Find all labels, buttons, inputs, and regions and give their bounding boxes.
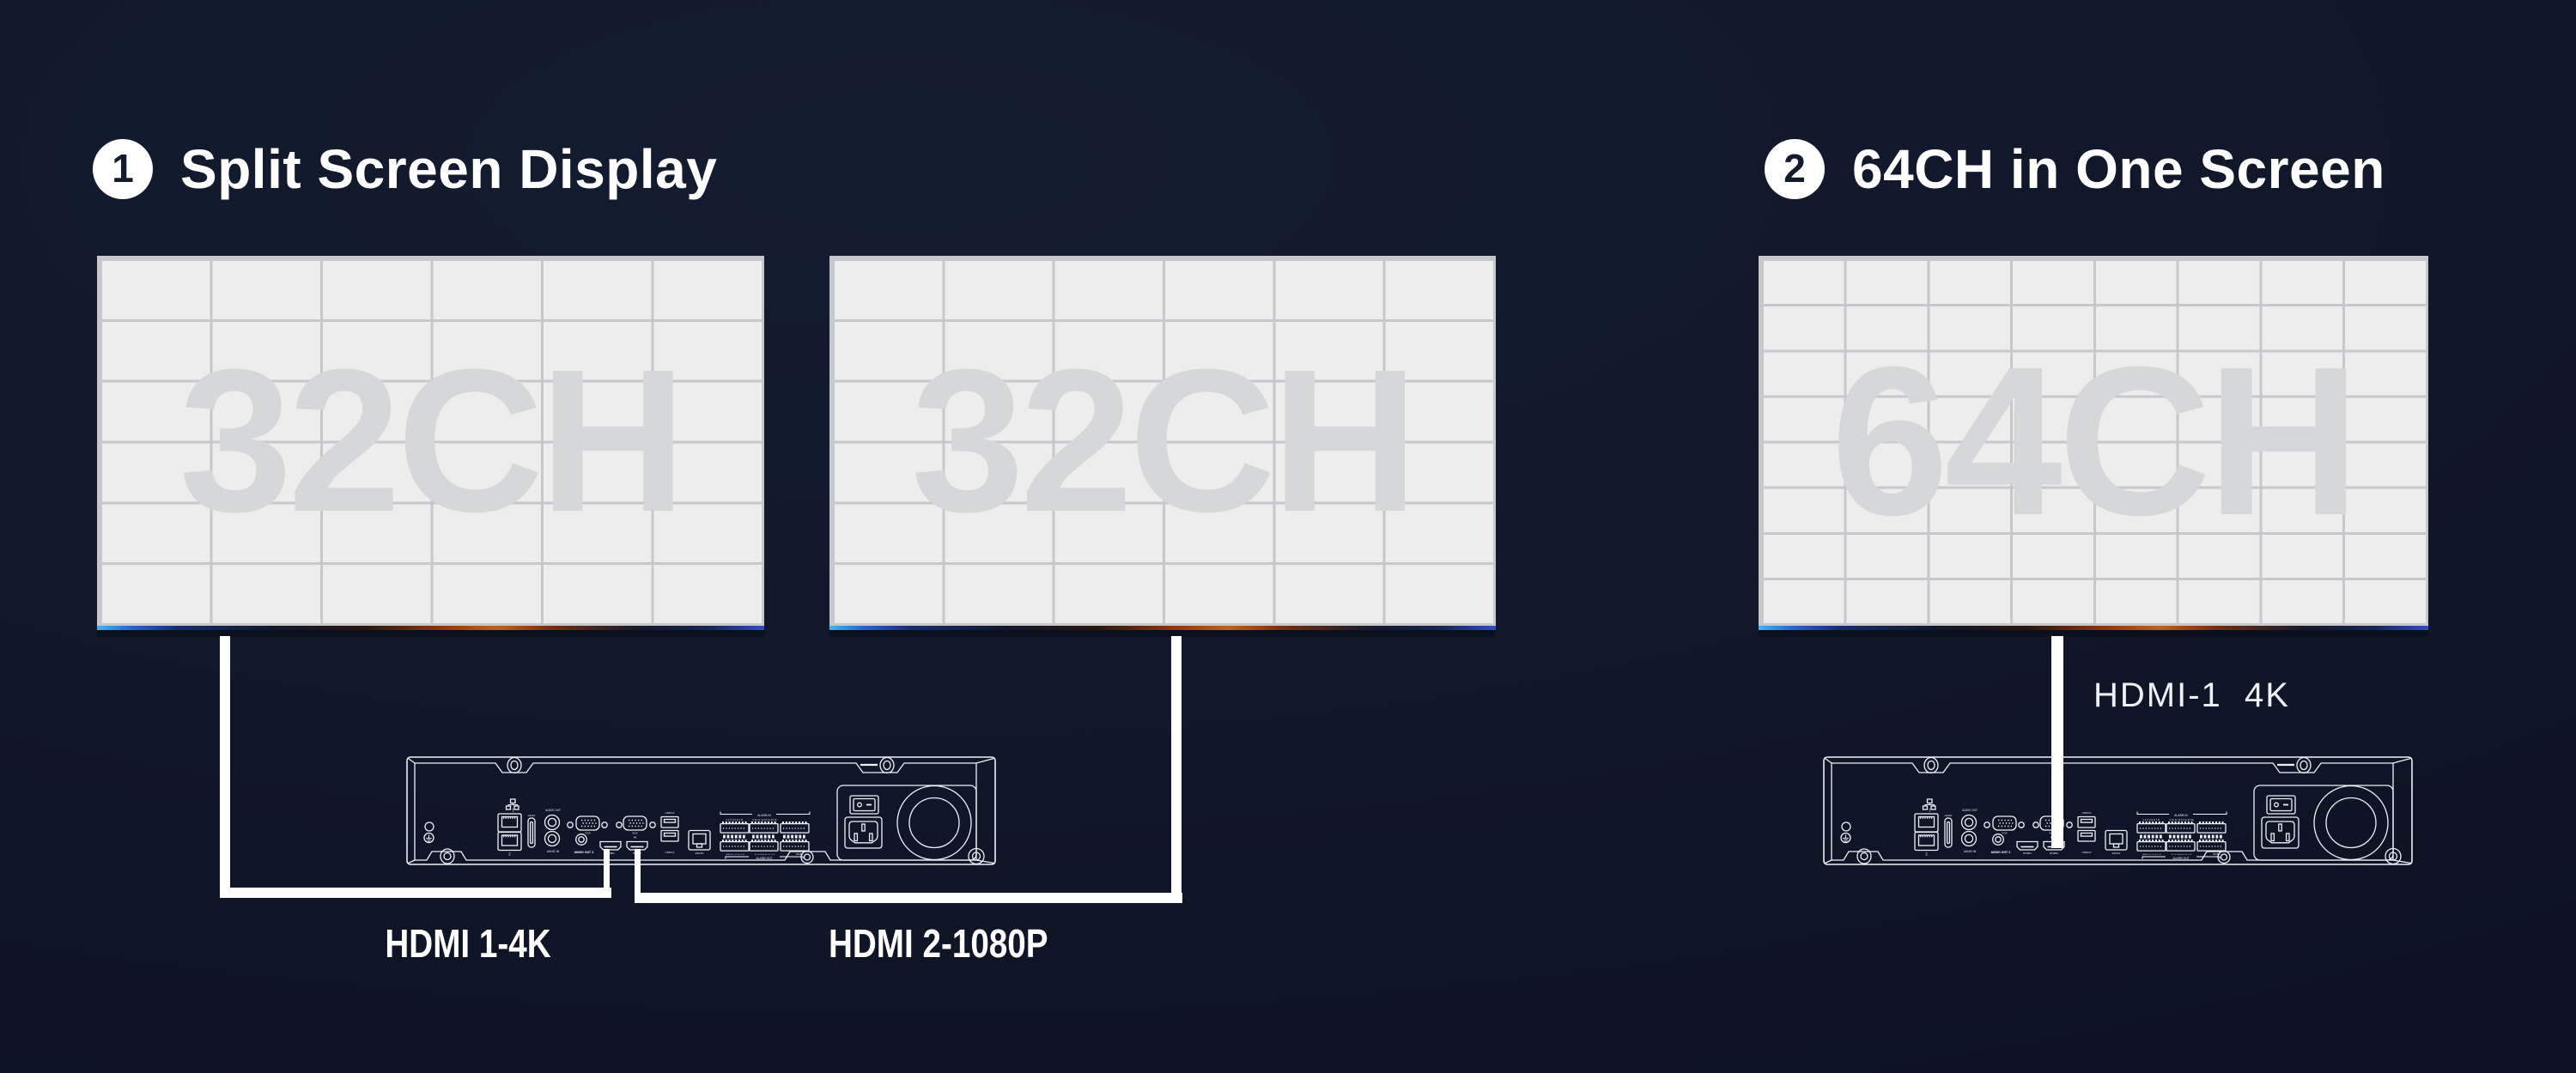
step-badge-2: 2 xyxy=(1765,139,1825,199)
section-title-one-screen: 64CH in One Screen xyxy=(1852,137,2385,201)
nvr-rear-panel-1 xyxy=(406,756,996,865)
hdmi1-cable-vertical xyxy=(220,636,230,898)
diagram-canvas: 1 2 eSATA AUDIO OUT AUDIO IN VGA AUDIO O… xyxy=(0,0,2576,1073)
screen-bezel xyxy=(829,630,1496,637)
channel-watermark: 32CH xyxy=(100,258,762,623)
hdmi1-cable-plug xyxy=(604,849,610,898)
screen-bezel xyxy=(97,630,764,637)
hdmi2-cable-vertical xyxy=(1171,636,1182,903)
hdmi2-cable-horizontal xyxy=(635,893,1182,903)
monitor-screen-2: 32CH xyxy=(829,256,1496,637)
channel-watermark: 32CH xyxy=(832,258,1493,623)
channel-grid-32: 32CH xyxy=(97,256,764,626)
monitor-screen-1: 32CH xyxy=(97,256,764,637)
screen-bezel xyxy=(1759,630,2428,637)
channel-grid-64: 64CH xyxy=(1759,256,2428,626)
channel-watermark: 64CH xyxy=(1761,258,2426,623)
cable-label-hdmi1-4k: HDMI 1-4K xyxy=(360,920,576,967)
hdmi1-cable-horizontal xyxy=(220,888,611,898)
hdmi-cable-single xyxy=(2051,636,2063,848)
monitor-screen-3: 64CH xyxy=(1759,256,2428,637)
section-title-split-screen: Split Screen Display xyxy=(180,137,717,201)
cable-label-hdmi1-4k-single: HDMI-1 4K xyxy=(2093,676,2290,715)
cable-label-hdmi2-1080p: HDMI 2-1080P xyxy=(829,920,1045,967)
channel-grid-32: 32CH xyxy=(829,256,1496,626)
step-badge-1: 1 xyxy=(93,139,153,199)
nvr-rear-panel-2 xyxy=(1823,756,2413,865)
